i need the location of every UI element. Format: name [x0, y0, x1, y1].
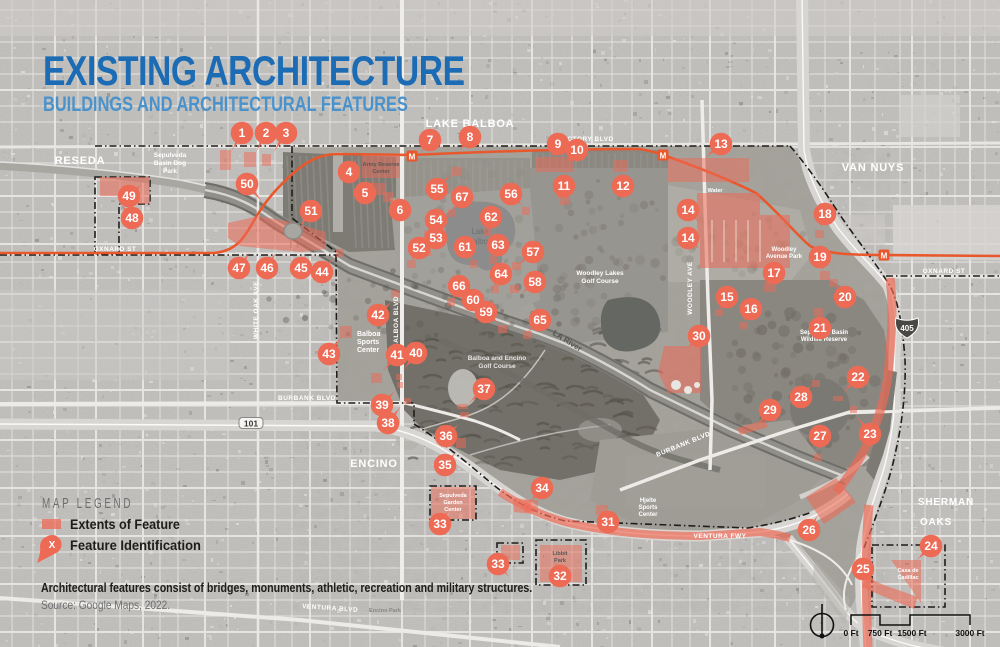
svg-text:17: 17	[767, 266, 781, 280]
svg-text:33: 33	[433, 517, 447, 531]
svg-text:Golf Course: Golf Course	[478, 363, 516, 370]
svg-text:RESEDA: RESEDA	[55, 155, 106, 167]
svg-text:BURBANK BLVD: BURBANK BLVD	[278, 395, 336, 402]
svg-text:44: 44	[315, 265, 329, 279]
svg-text:19: 19	[813, 250, 827, 264]
svg-text:8: 8	[467, 130, 474, 144]
svg-text:12: 12	[616, 179, 630, 193]
svg-text:16: 16	[744, 302, 758, 316]
svg-text:63: 63	[491, 238, 505, 252]
svg-text:Woodley Lakes: Woodley Lakes	[576, 270, 624, 277]
svg-text:65: 65	[533, 313, 547, 327]
svg-text:Woodley: Woodley	[772, 247, 798, 253]
svg-text:50: 50	[240, 177, 254, 191]
svg-text:47: 47	[232, 261, 246, 275]
svg-text:3: 3	[283, 126, 290, 140]
svg-text:39: 39	[375, 398, 389, 412]
svg-text:61: 61	[458, 240, 472, 254]
svg-text:26: 26	[802, 523, 816, 537]
svg-text:15: 15	[720, 290, 734, 304]
svg-text:64: 64	[494, 267, 508, 281]
svg-text:Balboa and Encino: Balboa and Encino	[468, 355, 527, 362]
svg-text:62: 62	[484, 210, 498, 224]
svg-text:4: 4	[346, 165, 353, 179]
svg-text:Park: Park	[163, 168, 177, 175]
svg-text:Basin Dog: Basin Dog	[154, 160, 186, 167]
svg-text:40: 40	[409, 346, 423, 360]
svg-text:36: 36	[439, 429, 453, 443]
svg-text:3000 Ft: 3000 Ft	[955, 628, 984, 638]
svg-text:405: 405	[900, 324, 914, 333]
svg-text:Sepulveda: Sepulveda	[154, 152, 187, 159]
svg-text:60: 60	[466, 293, 480, 307]
svg-text:27: 27	[813, 429, 827, 443]
svg-text:31: 31	[601, 515, 615, 529]
svg-text:M: M	[409, 153, 416, 162]
svg-text:Sports: Sports	[638, 505, 658, 511]
svg-text:Libbit: Libbit	[553, 551, 568, 557]
svg-text:49: 49	[122, 189, 136, 203]
svg-text:6: 6	[397, 203, 404, 217]
svg-text:Garden: Garden	[443, 500, 463, 506]
svg-text:2: 2	[263, 126, 270, 140]
svg-text:18: 18	[818, 207, 832, 221]
svg-text:33: 33	[491, 557, 505, 571]
svg-text:Center: Center	[372, 169, 390, 175]
svg-text:14: 14	[681, 203, 695, 217]
svg-text:Casa de: Casa de	[897, 568, 918, 574]
svg-text:56: 56	[504, 187, 518, 201]
svg-text:VAN NUYS: VAN NUYS	[842, 162, 904, 174]
svg-text:0 Ft: 0 Ft	[843, 628, 858, 638]
svg-text:57: 57	[526, 245, 540, 259]
svg-text:OXNARD ST: OXNARD ST	[923, 268, 966, 275]
svg-text:52: 52	[412, 241, 426, 255]
svg-text:WOODLEY AVE: WOODLEY AVE	[687, 261, 694, 315]
svg-text:25: 25	[856, 562, 870, 576]
svg-text:Park: Park	[554, 558, 567, 564]
svg-text:66: 66	[452, 279, 466, 293]
svg-text:750 Ft: 750 Ft	[868, 628, 893, 638]
svg-text:29: 29	[763, 403, 777, 417]
svg-text:67: 67	[455, 190, 469, 204]
svg-text:Cadillac: Cadillac	[897, 575, 918, 581]
svg-text:1500 Ft: 1500 Ft	[897, 628, 926, 638]
svg-text:Army Reserve: Army Reserve	[363, 162, 400, 168]
svg-text:51: 51	[304, 204, 318, 218]
svg-text:55: 55	[430, 182, 444, 196]
svg-text:35: 35	[438, 458, 452, 472]
svg-text:38: 38	[381, 416, 395, 430]
svg-text:10: 10	[570, 143, 584, 157]
svg-text:M: M	[660, 152, 667, 161]
svg-text:Golf Course: Golf Course	[581, 278, 619, 285]
svg-text:Center: Center	[638, 512, 658, 518]
svg-text:Center: Center	[444, 507, 462, 513]
svg-text:20: 20	[838, 290, 852, 304]
svg-text:42: 42	[371, 308, 385, 322]
svg-text:30: 30	[692, 329, 706, 343]
svg-text:Sepulveda: Sepulveda	[439, 493, 467, 499]
svg-text:22: 22	[851, 370, 865, 384]
svg-text:11: 11	[558, 179, 571, 193]
svg-text:54: 54	[429, 213, 443, 227]
svg-text:WHITE OAK AVE: WHITE OAK AVE	[253, 281, 260, 339]
svg-text:14: 14	[681, 231, 695, 245]
svg-text:46: 46	[260, 261, 274, 275]
svg-text:53: 53	[429, 231, 443, 245]
svg-text:M: M	[881, 252, 888, 261]
svg-text:VENTURA FWY: VENTURA FWY	[694, 533, 747, 540]
svg-text:Encino Park: Encino Park	[369, 608, 402, 614]
svg-text:OAKS: OAKS	[920, 517, 952, 528]
svg-text:28: 28	[794, 390, 808, 404]
svg-text:BALBOA BLVD: BALBOA BLVD	[393, 296, 400, 348]
svg-text:Hjelte: Hjelte	[640, 498, 657, 504]
svg-text:Balboa: Balboa	[357, 331, 380, 338]
svg-text:Sports: Sports	[357, 339, 379, 346]
svg-text:45: 45	[294, 261, 308, 275]
svg-text:21: 21	[813, 321, 827, 335]
svg-text:24: 24	[924, 539, 938, 553]
svg-text:ENCINO: ENCINO	[350, 458, 398, 470]
svg-text:41: 41	[390, 348, 404, 362]
svg-text:SHERMAN: SHERMAN	[918, 497, 974, 508]
svg-text:OXNARD ST: OXNARD ST	[94, 246, 137, 253]
svg-text:32: 32	[553, 569, 567, 583]
svg-text:58: 58	[528, 275, 542, 289]
svg-text:34: 34	[535, 481, 549, 495]
svg-text:9: 9	[555, 137, 562, 151]
svg-text:23: 23	[863, 427, 877, 441]
svg-text:48: 48	[125, 211, 139, 225]
svg-text:1: 1	[239, 126, 246, 140]
svg-text:43: 43	[322, 347, 336, 361]
svg-text:7: 7	[427, 133, 434, 147]
svg-text:37: 37	[477, 382, 491, 396]
svg-text:X: X	[49, 540, 56, 551]
svg-text:5: 5	[362, 186, 369, 200]
svg-text:101: 101	[244, 419, 258, 429]
svg-text:Center: Center	[357, 347, 379, 354]
svg-text:Water: Water	[707, 188, 723, 194]
svg-text:13: 13	[714, 137, 728, 151]
svg-text:Avenue Park: Avenue Park	[766, 254, 803, 260]
